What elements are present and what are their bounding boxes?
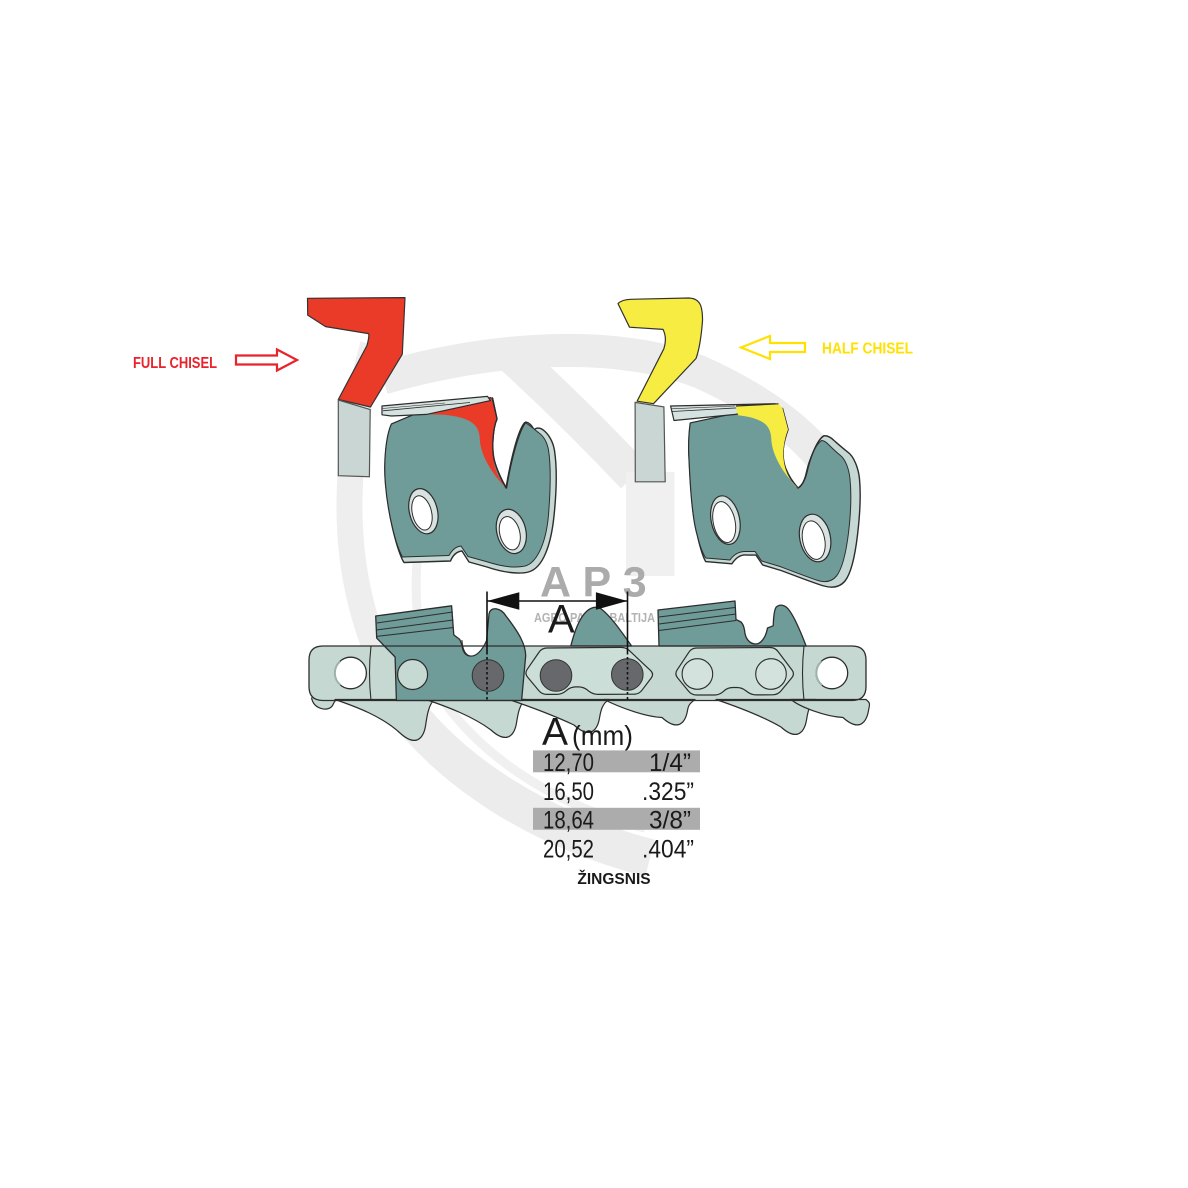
svg-text:HALF CHISEL: HALF CHISEL xyxy=(822,341,913,358)
svg-text:FULL CHISEL: FULL CHISEL xyxy=(133,355,217,372)
svg-text:.325”: .325” xyxy=(642,778,694,806)
svg-text:16,50: 16,50 xyxy=(543,778,594,806)
svg-text:A: A xyxy=(542,711,568,754)
svg-text:1/4”: 1/4” xyxy=(649,749,691,777)
svg-text:ŽINGSNIS: ŽINGSNIS xyxy=(577,870,650,888)
svg-text:A: A xyxy=(548,598,575,642)
svg-text:12,70: 12,70 xyxy=(543,749,594,777)
svg-text:20,52: 20,52 xyxy=(543,835,594,863)
svg-text:3/8”: 3/8” xyxy=(649,807,691,835)
svg-text:(mm): (mm) xyxy=(572,720,633,751)
svg-text:.404”: .404” xyxy=(642,835,694,863)
svg-text:18,64: 18,64 xyxy=(543,807,594,835)
